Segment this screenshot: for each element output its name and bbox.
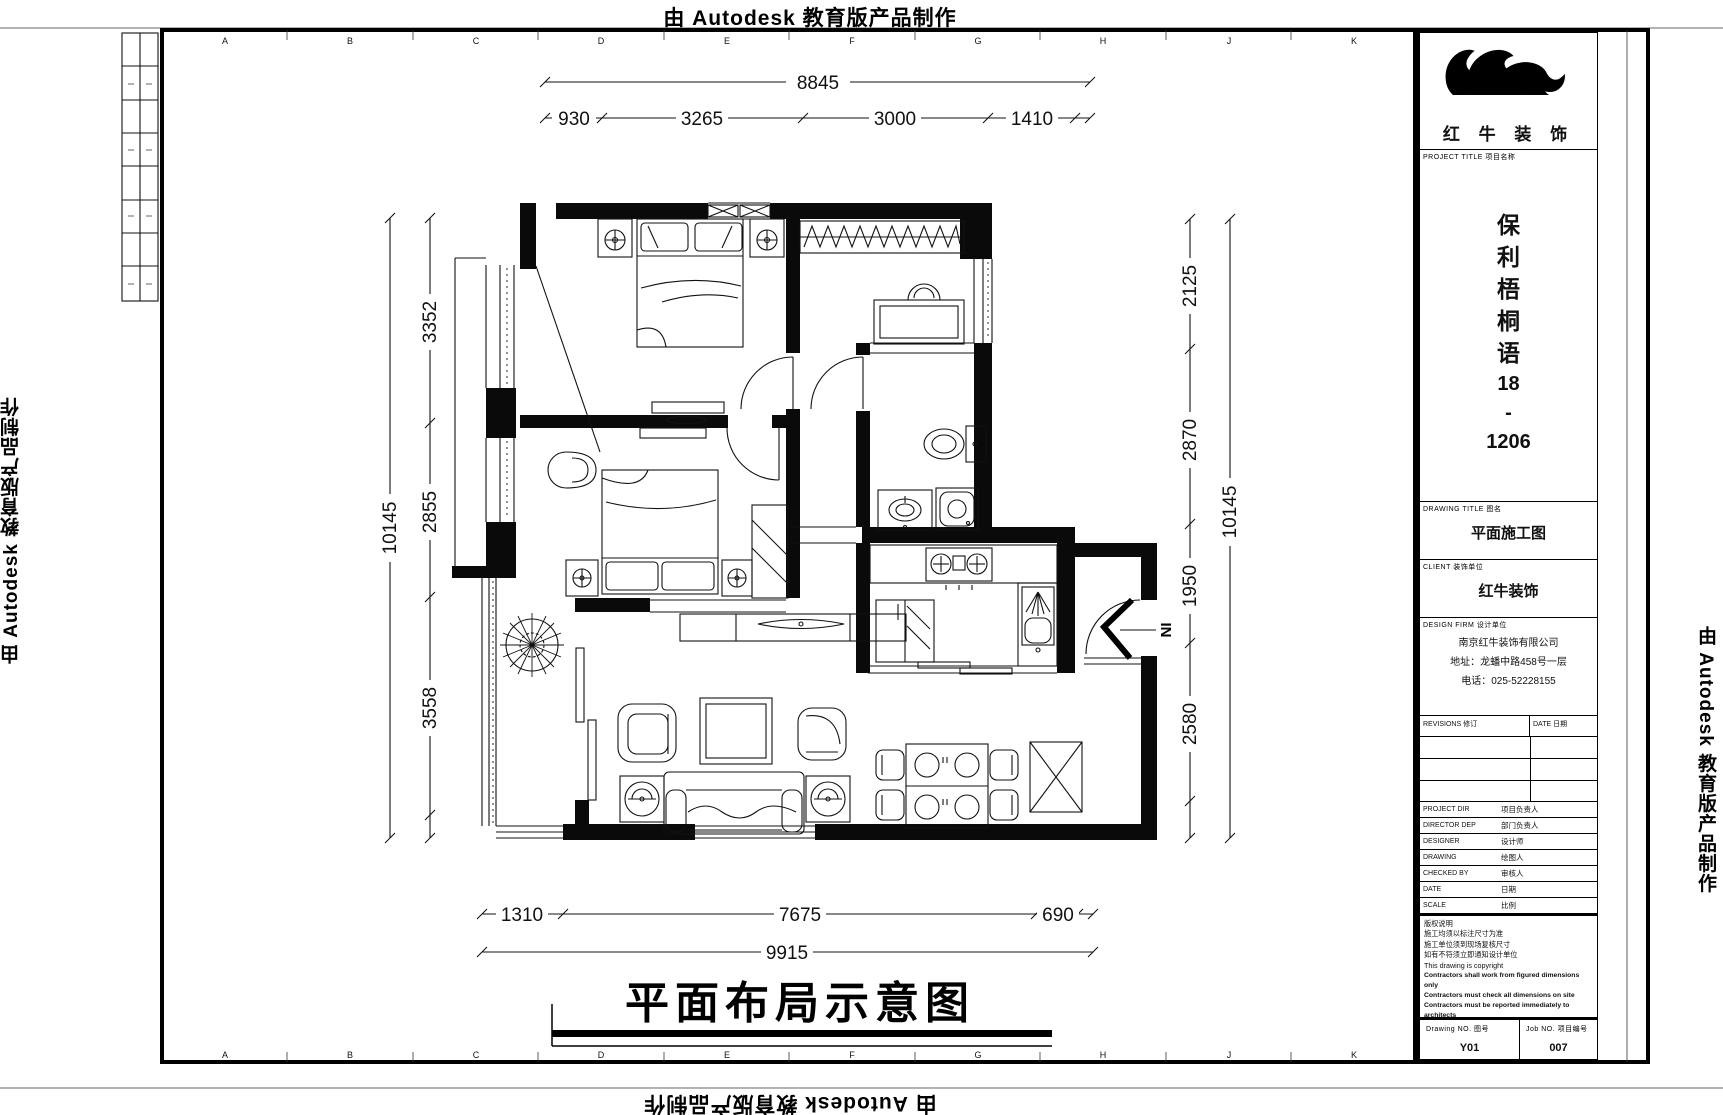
svg-text:K: K xyxy=(1351,36,1357,46)
svg-text:G: G xyxy=(974,1050,981,1060)
svg-text:F: F xyxy=(849,1050,855,1060)
project-name: 保 利 梧 桐 语 18 - 1206 xyxy=(1420,165,1597,502)
svg-text:2125: 2125 xyxy=(1180,265,1201,307)
number-row: Drawing NO. 图号 Y01 Job NO. 项目编号 007 xyxy=(1420,1018,1597,1062)
row-project-dir: PROJECT DIR项目负责人 xyxy=(1420,802,1597,818)
company-logo: 红 牛 装 饰 xyxy=(1420,33,1597,150)
svg-text:1410: 1410 xyxy=(1011,109,1053,130)
svg-text:H: H xyxy=(1100,36,1107,46)
svg-text:B: B xyxy=(347,1050,353,1060)
svg-text:3352: 3352 xyxy=(420,301,441,343)
drawing-title-row: DRAWING TITLE 图名 平面施工图 xyxy=(1420,502,1597,560)
svg-text:IN: IN xyxy=(1157,623,1174,638)
row-date: DATE日期 xyxy=(1420,882,1597,898)
design-firm-row: DESIGN FIRM 设计单位 南京红牛装饰有限公司 地址：龙蟠中路458号一… xyxy=(1420,618,1597,716)
svg-text:3558: 3558 xyxy=(420,687,441,729)
cad-sheet: 由 Autodesk 教育版产品制作 由 Autodesk 教育版产品制作 由 … xyxy=(0,0,1723,1115)
balcony xyxy=(500,613,564,677)
svg-text:8845: 8845 xyxy=(797,73,839,94)
drawing-title: 平面布局示意图 xyxy=(552,979,1052,1046)
svg-text:690: 690 xyxy=(1042,905,1074,926)
entry-in-label: IN xyxy=(1120,623,1174,638)
svg-text:J: J xyxy=(1227,1050,1232,1060)
svg-text:H: H xyxy=(1100,1050,1107,1060)
svg-text:K: K xyxy=(1351,1050,1357,1060)
bathroom-fixtures xyxy=(878,426,986,530)
left-strip-table xyxy=(122,33,158,301)
client-row: CLIENT 装饰单位 红牛装饰 xyxy=(1420,560,1597,618)
kitchen-fixtures xyxy=(870,545,1057,666)
svg-text:F: F xyxy=(849,36,855,46)
svg-text:D: D xyxy=(598,1050,605,1060)
svg-text:B: B xyxy=(347,36,353,46)
row-checked-by: CHECKED BY审核人 xyxy=(1420,866,1597,882)
bedroom1-furniture xyxy=(536,205,784,452)
svg-text:A: A xyxy=(222,1050,228,1060)
windows xyxy=(482,259,992,838)
svg-text:3265: 3265 xyxy=(681,109,723,130)
svg-text:9915: 9915 xyxy=(766,943,808,964)
svg-text:E: E xyxy=(724,36,730,46)
title-block: 红 牛 装 饰 PROJECT TITLE 项目名称 保 利 梧 桐 语 18 … xyxy=(1413,30,1598,1062)
svg-text:2855: 2855 xyxy=(420,491,441,533)
cloakroom-wardrobe xyxy=(800,221,964,344)
svg-text:J: J xyxy=(1227,36,1232,46)
company-name: 红 牛 装 饰 xyxy=(1443,120,1574,145)
bedroom2-furniture xyxy=(548,452,788,598)
svg-text:A: A xyxy=(222,36,228,46)
row-director-dep: DIRECTOR DEP部门负责人 xyxy=(1420,818,1597,834)
svg-text:3000: 3000 xyxy=(874,109,916,130)
svg-text:930: 930 xyxy=(558,109,590,130)
walls xyxy=(452,203,1157,840)
svg-text:D: D xyxy=(598,36,605,46)
svg-text:2870: 2870 xyxy=(1180,419,1201,461)
svg-text:10145: 10145 xyxy=(380,502,401,555)
svg-text:E: E xyxy=(724,1050,730,1060)
row-scale: SCALE比例 xyxy=(1420,898,1597,914)
svg-text:1950: 1950 xyxy=(1180,565,1201,607)
svg-text:2580: 2580 xyxy=(1180,703,1201,745)
bull-logo-icon xyxy=(1420,33,1570,95)
svg-text:平面布局示意图: 平面布局示意图 xyxy=(625,979,975,1028)
row-drawing: DRAWING绘图人 xyxy=(1420,850,1597,866)
svg-text:C: C xyxy=(473,36,480,46)
svg-text:10145: 10145 xyxy=(1220,486,1241,539)
svg-text:C: C xyxy=(473,1050,480,1060)
svg-text:7675: 7675 xyxy=(779,905,821,926)
dining-furniture xyxy=(876,742,1082,828)
svg-text:1310: 1310 xyxy=(501,905,543,926)
revisions-table: REVISIONS 修订 DATE 日期 xyxy=(1420,716,1597,802)
project-title-label: PROJECT TITLE 项目名称 xyxy=(1420,150,1597,165)
row-designer: DESIGNER设计师 xyxy=(1420,834,1597,850)
svg-text:G: G xyxy=(974,36,981,46)
notes-block: 版权说明 施工均须以标注尺寸为准 施工单位须到现场复核尺寸 如有不符须立即通知设… xyxy=(1420,914,1597,1018)
